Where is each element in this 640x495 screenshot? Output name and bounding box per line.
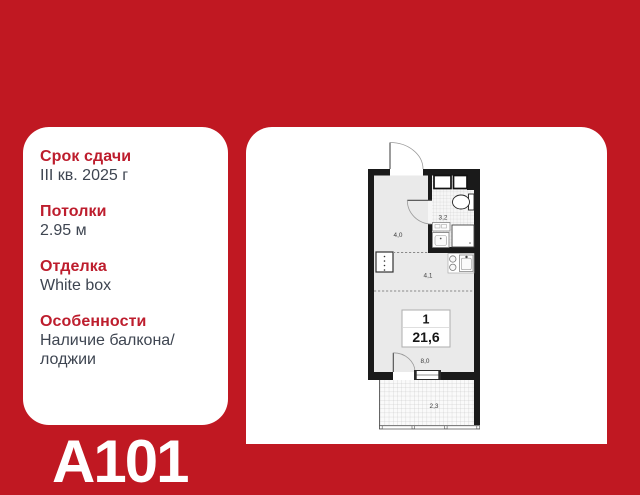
- spec-features-value: Наличие балкона/лоджии: [40, 331, 214, 369]
- spec-finish: Отделка White box: [40, 257, 214, 295]
- brand-logo: A101: [52, 432, 187, 492]
- spec-delivery-value: III кв. 2025 г: [40, 166, 214, 185]
- spec-features: Особенности Наличие балкона/лоджии: [40, 312, 214, 369]
- shower: [452, 225, 474, 247]
- specs-panel: Срок сдачи III кв. 2025 г Потолки 2.95 м…: [23, 127, 228, 425]
- living-area-label: 8,0: [421, 358, 430, 365]
- spec-ceiling-label: Потолки: [40, 202, 214, 221]
- unit-badge: 1 21,6: [402, 310, 450, 347]
- entrance-door: [390, 143, 423, 176]
- bathroom-area-label: 3,2: [439, 215, 448, 222]
- hallway-area-label: 4,0: [394, 232, 403, 239]
- kitchen-area-label: 4,1: [424, 273, 433, 280]
- bathroom-sink: [433, 223, 451, 248]
- spec-finish-value: White box: [40, 276, 214, 295]
- kitchen-counter: [448, 254, 474, 274]
- spec-ceiling: Потолки 2.95 м: [40, 202, 214, 240]
- spec-delivery-label: Срок сдачи: [40, 147, 214, 166]
- spec-finish-label: Отделка: [40, 257, 214, 276]
- toilet-icon: [453, 194, 475, 210]
- balcony-window: [415, 371, 441, 380]
- unit-total-area: 21,6: [412, 329, 439, 345]
- wardrobe: [376, 252, 393, 272]
- washing-machine: [434, 176, 467, 189]
- floor-plan-panel: 4,0 3,2 4,1 8,0 2,3 1 21,6: [246, 127, 607, 444]
- floor-plan: 4,0 3,2 4,1 8,0 2,3 1 21,6: [246, 127, 607, 444]
- balcony-railing: [379, 426, 480, 429]
- spec-ceiling-value: 2.95 м: [40, 221, 214, 240]
- vent-shaft: [467, 175, 474, 190]
- unit-rooms-count: 1: [423, 313, 430, 327]
- balcony-area-label: 2,3: [430, 403, 439, 410]
- spec-features-label: Особенности: [40, 312, 214, 331]
- spec-delivery: Срок сдачи III кв. 2025 г: [40, 147, 214, 185]
- kitchen-sink: [460, 255, 474, 272]
